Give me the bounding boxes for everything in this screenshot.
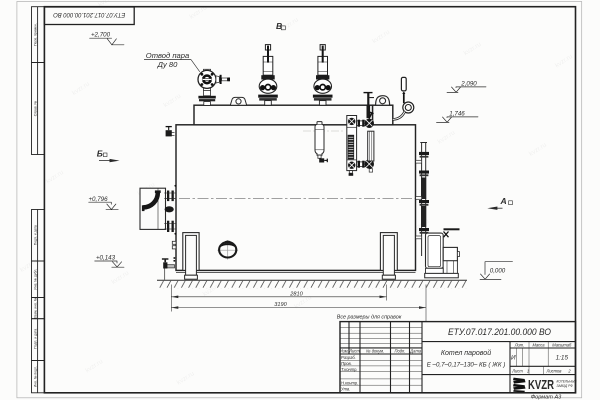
svg-text:Подп. и дата: Подп. и дата — [34, 225, 38, 245]
svg-text:0,000: 0,000 — [490, 267, 506, 274]
svg-text:2810: 2810 — [289, 291, 303, 297]
svg-text:Лит.: Лит. — [514, 342, 525, 347]
svg-text:Масштаб: Масштаб — [552, 342, 572, 347]
svg-text:Лист: Лист — [511, 369, 523, 374]
svg-text:ЗАВОД РФ: ЗАВОД РФ — [557, 384, 574, 388]
svg-text:Котел паровой: Котел паровой — [441, 349, 491, 357]
svg-text:+0,796: +0,796 — [88, 196, 108, 203]
svg-text:Е –0,7–0,17–130– КБ ( ЖК ): Е –0,7–0,17–130– КБ ( ЖК ) — [427, 361, 506, 368]
svg-text:Лист: Лист — [348, 349, 360, 354]
svg-text:2,090: 2,090 — [460, 81, 477, 88]
svg-text:Ду 80: Ду 80 — [157, 60, 179, 69]
svg-text:Утв.: Утв. — [341, 387, 350, 392]
svg-text:+2,700: +2,700 — [91, 32, 111, 39]
svg-text:Т.контр.: Т.контр. — [341, 367, 358, 372]
svg-text:Изм.: Изм. — [340, 349, 349, 354]
svg-text:№ докум.: № докум. — [366, 349, 384, 354]
svg-text:Справ. №: Справ. № — [34, 100, 38, 116]
svg-text:Пров.: Пров. — [341, 361, 352, 366]
svg-text:КОТЕЛЬНЫЙ: КОТЕЛЬНЫЙ — [557, 379, 578, 383]
svg-text:Дата: Дата — [409, 349, 422, 354]
svg-text:А: А — [500, 196, 507, 206]
svg-text:Листов: Листов — [546, 369, 563, 374]
svg-text:Подп.: Подп. — [395, 349, 406, 354]
svg-text:Отвод пара: Отвод пара — [146, 51, 189, 60]
svg-text:Все размеры для справок: Все размеры для справок — [337, 315, 402, 321]
svg-text:1,746: 1,746 — [449, 111, 465, 118]
svg-text:Масса: Масса — [532, 342, 545, 347]
svg-text:И: И — [511, 355, 516, 362]
svg-text:ЕТУ.07.017.201.00.000 ВО: ЕТУ.07.017.201.00.000 ВО — [448, 327, 551, 338]
svg-text:Инв. № подл.: Инв. № подл. — [34, 366, 38, 387]
svg-text:Н.контр.: Н.контр. — [341, 380, 358, 385]
svg-text:1:15: 1:15 — [556, 355, 569, 362]
svg-text:Взам. инв. №: Взам. инв. № — [34, 297, 38, 318]
svg-text:KVZR: KVZR — [528, 378, 554, 392]
svg-text:Разраб.: Разраб. — [341, 355, 356, 360]
svg-text:ЕТУ.07.017.201.00.000 ВО: ЕТУ.07.017.201.00.000 ВО — [53, 11, 126, 18]
svg-text:Перв. примен.: Перв. примен. — [34, 23, 38, 46]
svg-text:Формат А3: Формат А3 — [531, 394, 562, 400]
svg-text:1: 1 — [527, 369, 529, 374]
svg-text:Б: Б — [97, 148, 103, 158]
svg-text:+0,143: +0,143 — [96, 254, 116, 261]
svg-text:Подп. и дата: Подп. и дата — [34, 329, 38, 349]
svg-text:3190: 3190 — [274, 302, 287, 308]
svg-text:Инв. № дубл.: Инв. № дубл. — [34, 269, 38, 290]
